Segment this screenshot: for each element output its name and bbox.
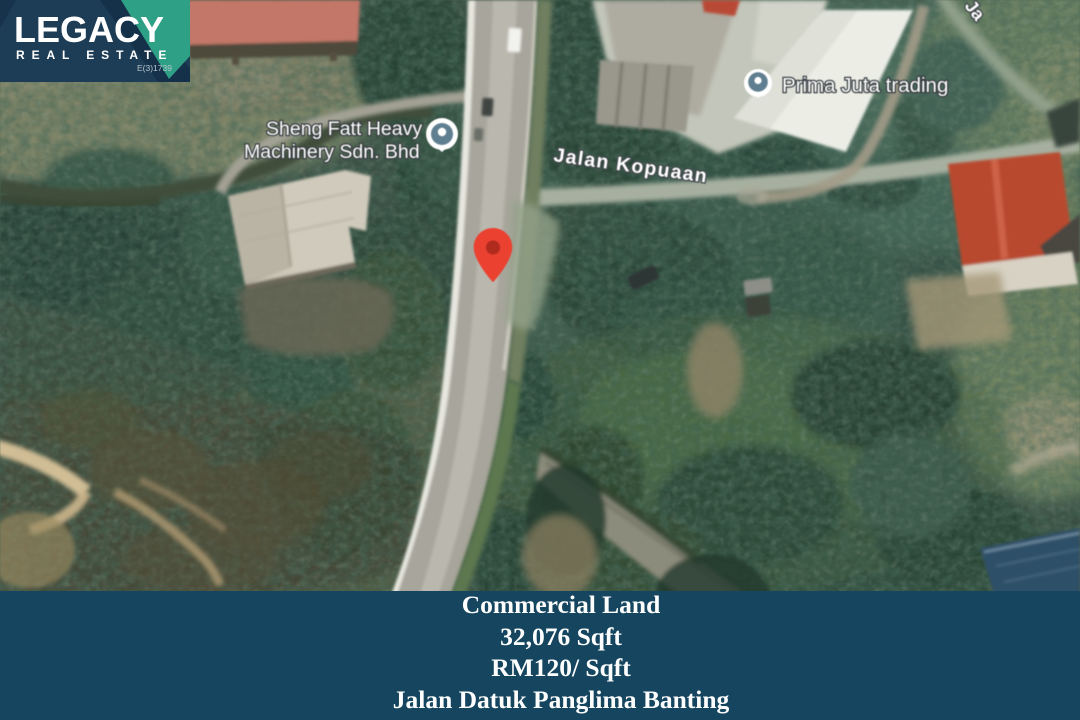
svg-text:Sheng Fatt Heavy: Sheng Fatt Heavy xyxy=(266,118,422,140)
svg-text:Prima Juta trading: Prima Juta trading xyxy=(782,74,948,97)
svg-text:Machinery Sdn. Bhd: Machinery Sdn. Bhd xyxy=(244,141,420,163)
